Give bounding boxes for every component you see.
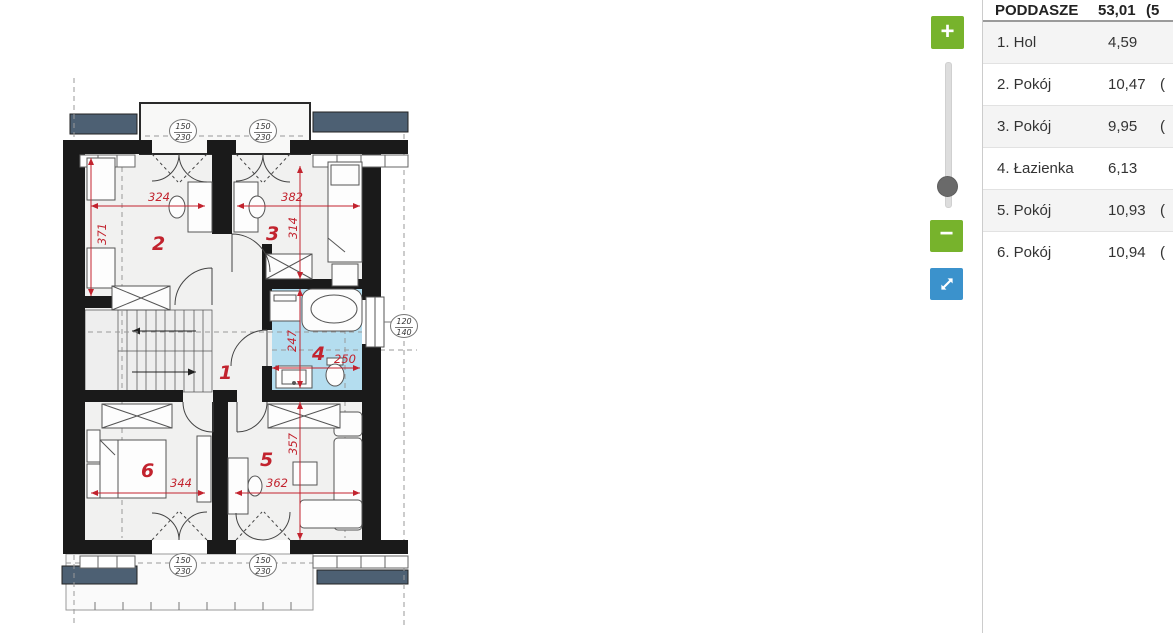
room-name: 1. Hol: [983, 34, 1108, 51]
window-badge: 150 230: [250, 554, 277, 577]
svg-text:120: 120: [396, 317, 411, 326]
fullscreen-button[interactable]: [930, 268, 963, 300]
room-1-number: 1: [219, 362, 232, 384]
floorplan-viewer: 324 382 371 314 247 250 357 344 362 1 2 …: [0, 0, 1173, 633]
room-area: 4,59: [1108, 34, 1160, 51]
room-area: 10,94: [1108, 244, 1160, 261]
svg-text:150: 150: [255, 122, 270, 131]
svg-text:230: 230: [175, 133, 190, 142]
room-area: 6,13: [1108, 160, 1160, 177]
room-list-panel: PODDASZE 53,01 (5 1. Hol 4,59 2. Pokój 1…: [982, 0, 1173, 633]
room-name: 5. Pokój: [983, 202, 1108, 219]
room-6-number: 6: [141, 460, 154, 482]
svg-text:150: 150: [175, 122, 190, 131]
room-area-extra: (: [1160, 244, 1173, 261]
room-area-extra: (: [1160, 118, 1173, 135]
floor-plan: 324 382 371 314 247 250 357 344 362 1 2 …: [0, 0, 930, 633]
svg-text:140: 140: [396, 328, 411, 337]
room-area: 10,47: [1108, 76, 1160, 93]
bath-window: [366, 297, 391, 347]
dim-room2-width: 324: [148, 190, 170, 204]
bed: [100, 440, 166, 498]
zoom-slider-handle[interactable]: [937, 176, 958, 197]
window-badge: 150 230: [170, 120, 197, 143]
room-row-6[interactable]: 6. Pokój 10,94 (: [983, 231, 1173, 273]
dim-room4-height: 247: [285, 329, 299, 352]
svg-text:150: 150: [255, 556, 270, 565]
staircase: [85, 310, 212, 392]
floor-total-area: 53,01: [1098, 2, 1146, 19]
room-4-number: 4: [311, 343, 325, 365]
room-name: 3. Pokój: [983, 118, 1108, 135]
window-badge: 150 230: [170, 554, 197, 577]
window-badge: 150 230: [250, 120, 277, 143]
room-area-extra: (: [1160, 202, 1173, 219]
dim-room2-height: 371: [95, 223, 109, 245]
room-row-2[interactable]: 2. Pokój 10,47 (: [983, 63, 1173, 105]
svg-text:230: 230: [255, 133, 270, 142]
room-3-number: 3: [266, 223, 279, 245]
expand-arrows-icon: [938, 275, 956, 293]
svg-text:150: 150: [175, 556, 190, 565]
dim-room6-width: 344: [170, 476, 192, 490]
room-area: 10,93: [1108, 202, 1160, 219]
svg-text:230: 230: [255, 567, 270, 576]
room-row-4[interactable]: 4. Łazienka 6,13: [983, 147, 1173, 189]
room-area-extra: (: [1160, 76, 1173, 93]
dim-room3-width: 382: [281, 190, 303, 204]
svg-text:230: 230: [175, 567, 190, 576]
room-area: 9,95: [1108, 118, 1160, 135]
minus-icon: −: [939, 220, 953, 247]
room-list-header: PODDASZE 53,01 (5: [983, 0, 1173, 22]
room-name: 4. Łazienka: [983, 160, 1108, 177]
floor-plan-canvas[interactable]: 324 382 371 314 247 250 357 344 362 1 2 …: [0, 0, 930, 633]
dim-room3-height: 314: [286, 217, 300, 239]
room-name: 2. Pokój: [983, 76, 1108, 93]
room-row-1[interactable]: 1. Hol 4,59: [983, 22, 1173, 63]
room-row-5[interactable]: 5. Pokój 10,93 (: [983, 189, 1173, 231]
room-5-number: 5: [260, 449, 273, 471]
dim-room5-height: 357: [286, 432, 300, 455]
dim-room4-width: 250: [334, 352, 356, 366]
window-badge: 120 140: [391, 315, 418, 338]
room-row-3[interactable]: 3. Pokój 9,95 (: [983, 105, 1173, 147]
zoom-out-button[interactable]: −: [930, 220, 963, 252]
floor-title: PODDASZE: [983, 2, 1098, 19]
room-2-number: 2: [152, 233, 165, 255]
floor-extra-area: (5: [1146, 2, 1173, 19]
zoom-in-button[interactable]: +: [931, 16, 964, 49]
dim-room5-width: 362: [266, 476, 288, 490]
room-name: 6. Pokój: [983, 244, 1108, 261]
plus-icon: +: [940, 18, 954, 45]
